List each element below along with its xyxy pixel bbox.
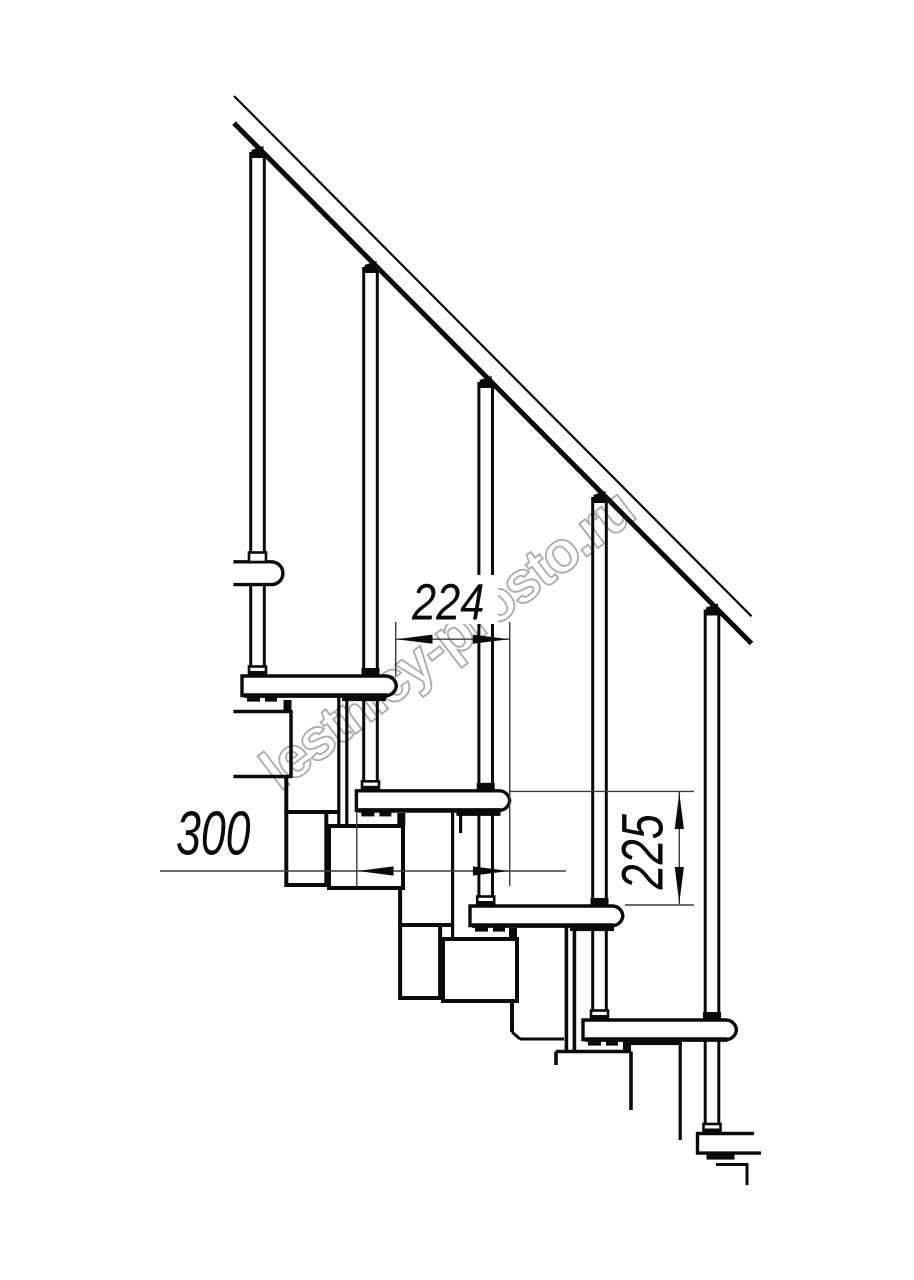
svg-text:300: 300 (176, 799, 250, 868)
svg-text:225: 225 (611, 813, 676, 890)
svg-text:224: 224 (411, 574, 484, 631)
